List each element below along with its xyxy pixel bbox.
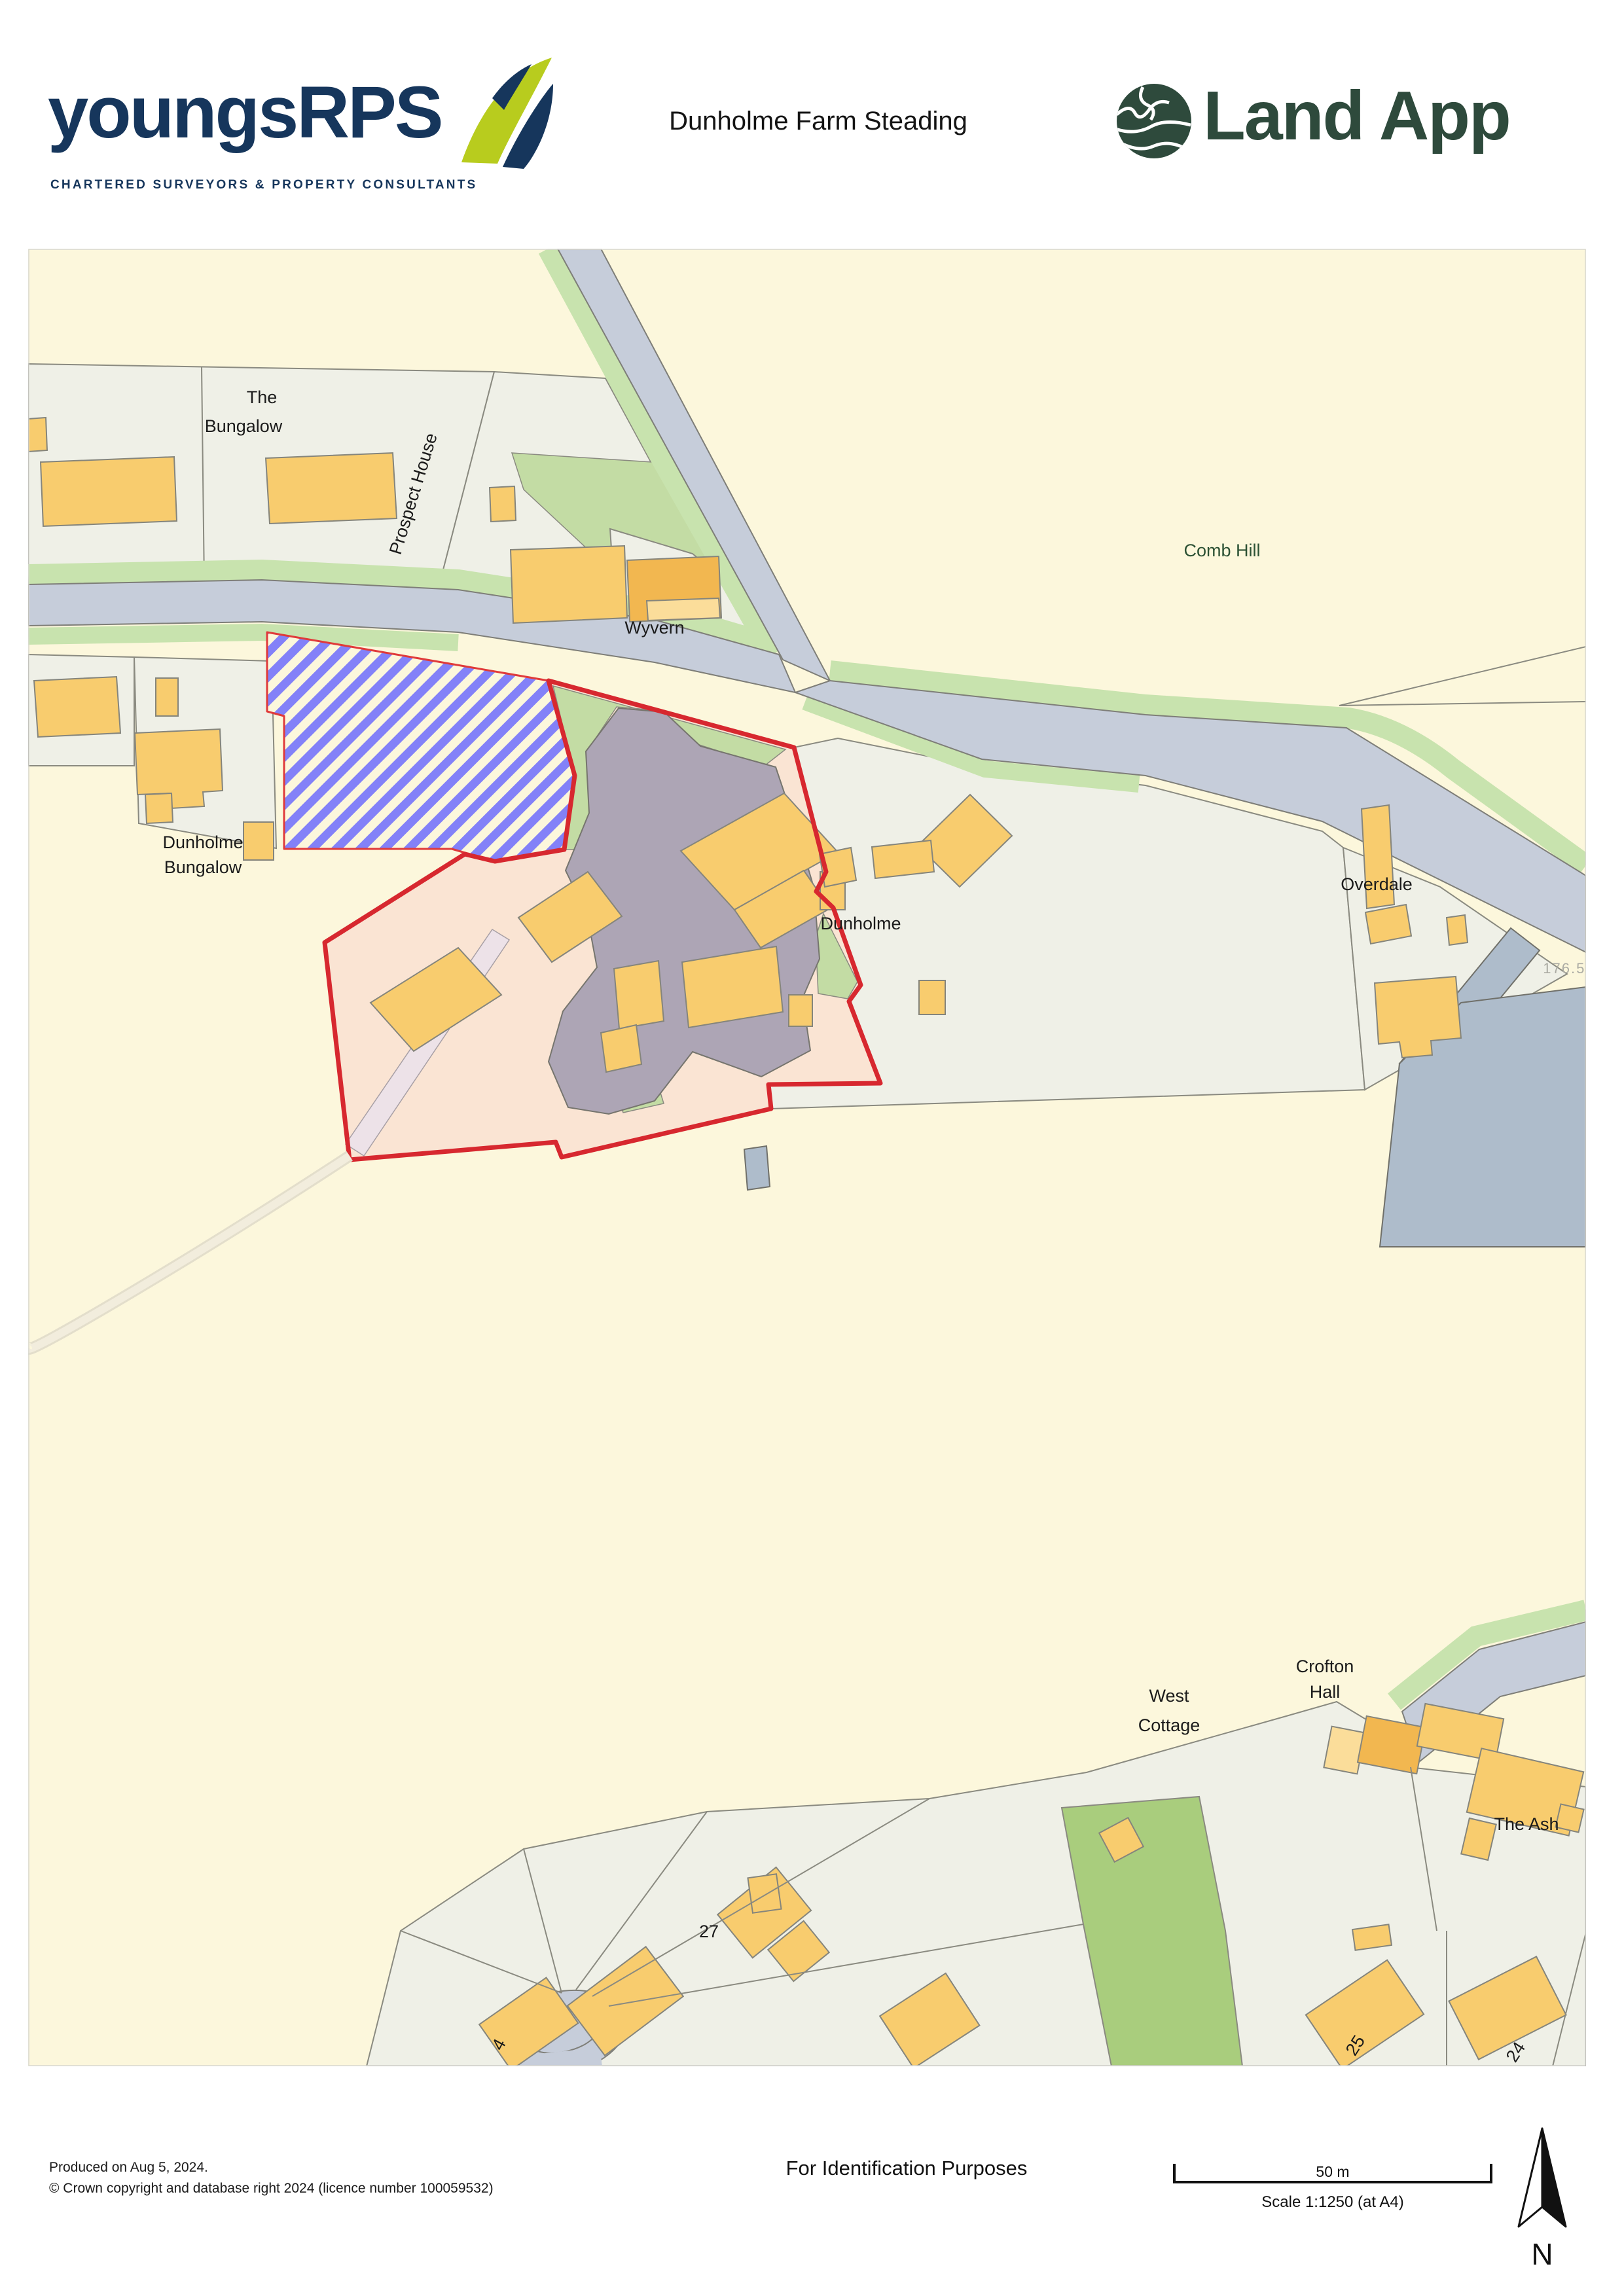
landapp-logo-wordmark: Land App (1203, 81, 1510, 151)
scalebar-and-north-arrow: 50 m Scale 1:1250 (at A4) N (1113, 2121, 1610, 2296)
label-the-bungalow: The (247, 387, 278, 407)
footer-purpose-note: For Identification Purposes (710, 2157, 1103, 2180)
footer-copyright: © Crown copyright and database right 202… (49, 2181, 494, 2197)
map: The Bungalow Prospect House Wyvern Comb … (28, 249, 1586, 2066)
page-title: Dunholme Farm Steading (622, 107, 1015, 136)
scale-ratio-label: Scale 1:1250 (at A4) (1261, 2193, 1403, 2211)
label-crofton-hall-2: Hall (1310, 1682, 1341, 1702)
label-west-cottage: West (1149, 1686, 1189, 1706)
landapp-logo-icon (1111, 79, 1197, 164)
map-document-page: youngsRPS CHARTERED SURVEYORS & PROPERTY… (0, 0, 1624, 2296)
label-the-bungalow-2: Bungalow (205, 416, 283, 436)
label-overdale: Overdale (1341, 874, 1413, 894)
scale-bar: 50 m Scale 1:1250 (at A4) (1174, 2163, 1491, 2211)
small-structure (744, 1146, 770, 1190)
scale-bar-label: 50 m (1316, 2163, 1349, 2180)
label-wyvern: Wyvern (624, 618, 684, 637)
label-dunholme: Dunholme (820, 914, 901, 933)
label-comb-hill: Comb Hill (1183, 541, 1260, 560)
footer-produced-date: Produced on Aug 5, 2024. (49, 2160, 208, 2176)
youngsrps-logo-wordmark: youngsRPS (48, 76, 442, 149)
north-arrow-icon: N (1519, 2128, 1566, 2271)
youngsrps-tagline: CHARTERED SURVEYORS & PROPERTY CONSULTAN… (50, 178, 477, 192)
label-crofton-hall: Crofton (1296, 1657, 1354, 1676)
label-west-cottage-2: Cottage (1138, 1715, 1200, 1735)
label-27: 27 (699, 1922, 719, 1941)
label-the-ash: The Ash (1494, 1814, 1559, 1834)
label-dunholme-bungalow: Dunholme (162, 833, 243, 852)
youngsrps-swoosh-icon (419, 52, 569, 177)
north-label: N (1531, 2237, 1553, 2271)
label-dunholme-bungalow-2: Bungalow (164, 857, 242, 877)
label-spot-height: 176.5m (1543, 960, 1586, 977)
